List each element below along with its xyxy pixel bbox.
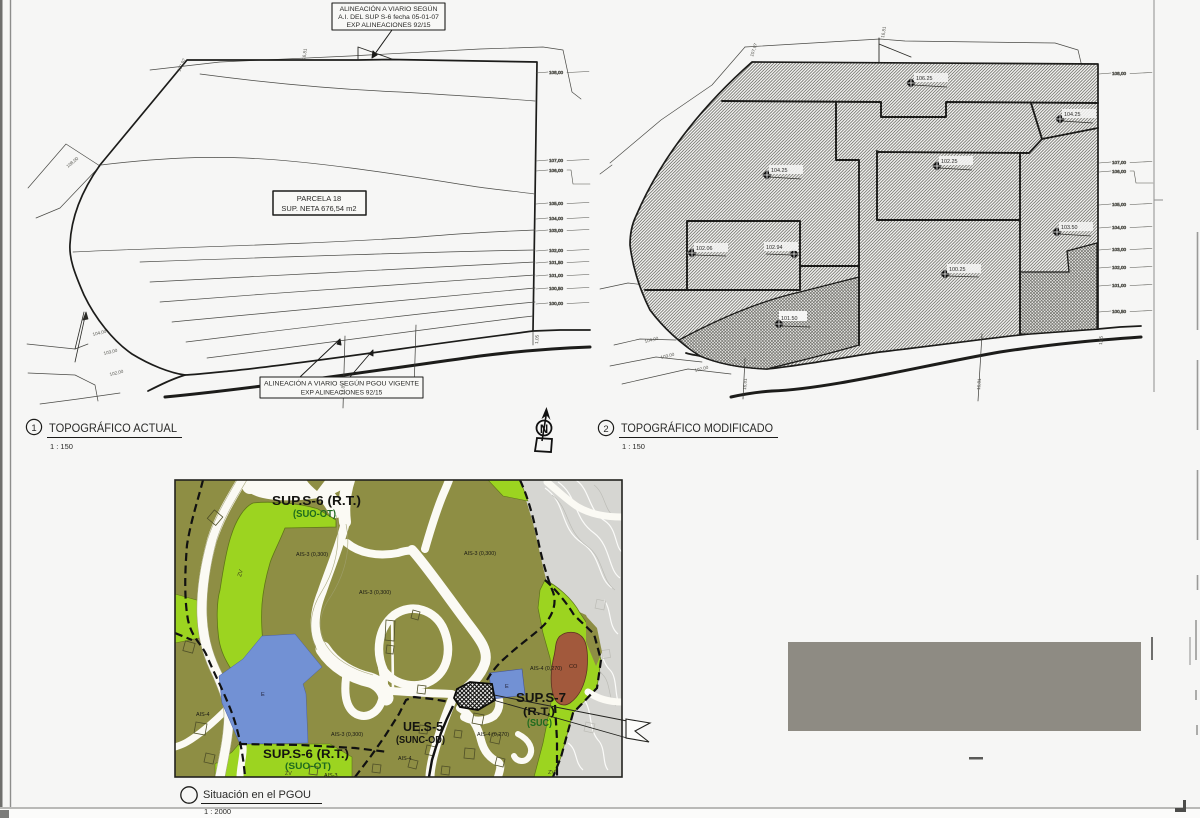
svg-text:103,00: 103,00 — [1112, 247, 1126, 252]
svg-text:102.94: 102.94 — [766, 245, 783, 251]
svg-text:AIS-4 (0,270): AIS-4 (0,270) — [477, 732, 509, 738]
svg-text:104.25: 104.25 — [1064, 112, 1081, 118]
svg-text:UE.S-5: UE.S-5 — [403, 720, 443, 734]
svg-text:1,05: 1,05 — [534, 334, 540, 344]
svg-text:102.25: 102.25 — [941, 159, 958, 165]
svg-text:105,00: 105,00 — [1112, 202, 1126, 207]
svg-text:101.50: 101.50 — [781, 316, 798, 322]
svg-text:SUP.S-7: SUP.S-7 — [516, 691, 566, 705]
svg-text:101,00: 101,00 — [549, 273, 563, 278]
svg-text:102.06: 102.06 — [696, 246, 713, 252]
svg-text:105,00: 105,00 — [549, 201, 563, 206]
svg-text:(SUO-OT): (SUO-OT) — [293, 509, 336, 520]
svg-text:Situación en el PGOU: Situación en el PGOU — [203, 789, 311, 801]
svg-text:1: 1 — [31, 423, 36, 434]
svg-text:SUP. NETA 676,54 m2: SUP. NETA 676,54 m2 — [281, 204, 356, 213]
svg-text:103,00: 103,00 — [549, 228, 563, 233]
svg-text:CO: CO — [569, 664, 578, 670]
svg-text:AIS-3 (0,300): AIS-3 (0,300) — [296, 552, 328, 558]
svg-text:100,50: 100,50 — [1112, 309, 1126, 314]
svg-text:E: E — [261, 692, 265, 698]
svg-text:102,00: 102,00 — [1112, 265, 1126, 270]
svg-text:101,00: 101,00 — [1112, 283, 1126, 288]
svg-text:SUP.S-6 (R.T.): SUP.S-6 (R.T.) — [272, 494, 361, 508]
svg-text:2: 2 — [603, 424, 608, 435]
svg-text:16,81: 16,81 — [976, 378, 982, 390]
svg-text:1 : 150: 1 : 150 — [50, 442, 73, 451]
svg-text:100,50: 100,50 — [549, 286, 563, 291]
svg-text:104,00: 104,00 — [1112, 225, 1126, 230]
svg-text:ZV: ZV — [548, 770, 555, 776]
svg-text:AIS-4: AIS-4 — [196, 712, 209, 718]
svg-text:(SUNC-OD): (SUNC-OD) — [396, 735, 445, 746]
svg-text:AIS-3 (0,300): AIS-3 (0,300) — [331, 732, 363, 738]
svg-text:E: E — [505, 684, 509, 690]
svg-text:101,50: 101,50 — [549, 260, 563, 265]
svg-text:100.25: 100.25 — [949, 267, 966, 273]
svg-text:TOPOGRÁFICO ACTUAL: TOPOGRÁFICO ACTUAL — [49, 420, 177, 435]
svg-text:108,00: 108,00 — [549, 70, 563, 75]
svg-text:1,05: 1,05 — [1098, 335, 1104, 345]
svg-text:103.50: 103.50 — [1061, 225, 1078, 231]
svg-text:TOPOGRÁFICO MODIFICADO: TOPOGRÁFICO MODIFICADO — [621, 420, 773, 435]
svg-text:(R.T.): (R.T.) — [523, 706, 555, 718]
svg-text:A.I. DEL SUP S-6 fecha 05-01-0: A.I. DEL SUP S-6 fecha 05-01-07 — [338, 14, 439, 21]
svg-text:1 : 150: 1 : 150 — [622, 442, 645, 451]
svg-text:106,00: 106,00 — [1112, 169, 1126, 174]
svg-text:16,81: 16,81 — [742, 378, 748, 390]
svg-text:104,00: 104,00 — [549, 216, 563, 221]
svg-text:PARCELA 18: PARCELA 18 — [297, 194, 341, 203]
svg-text:108,00: 108,00 — [1112, 71, 1126, 76]
svg-text:AIS-3 (0,300): AIS-3 (0,300) — [464, 551, 496, 557]
svg-text:ALINEACIÓN A VIARIO SEGÚN: ALINEACIÓN A VIARIO SEGÚN — [340, 4, 438, 13]
svg-text:(SUO-OT): (SUO-OT) — [285, 761, 331, 772]
svg-text:EXP ALINEACIONES 92/15: EXP ALINEACIONES 92/15 — [346, 22, 430, 29]
svg-text:AIS-3 (0,300): AIS-3 (0,300) — [359, 590, 391, 596]
svg-text:SUP.S-6 (R.T.): SUP.S-6 (R.T.) — [263, 747, 349, 761]
svg-text:AIS-4: AIS-4 — [398, 756, 411, 762]
svg-text:106.25: 106.25 — [916, 76, 933, 82]
svg-text:104.25: 104.25 — [771, 168, 788, 174]
svg-text:16,81: 16,81 — [340, 383, 346, 395]
svg-text:100,00: 100,00 — [549, 301, 563, 306]
svg-text:1 : 2000: 1 : 2000 — [204, 807, 231, 816]
svg-text:AIS-4 (0,270): AIS-4 (0,270) — [530, 666, 562, 672]
svg-text:106,00: 106,00 — [549, 168, 563, 173]
svg-text:(SUC): (SUC) — [527, 718, 552, 729]
svg-text:107,00: 107,00 — [1112, 160, 1126, 165]
svg-text:107,00: 107,00 — [549, 158, 563, 163]
svg-text:102,00: 102,00 — [549, 248, 563, 253]
